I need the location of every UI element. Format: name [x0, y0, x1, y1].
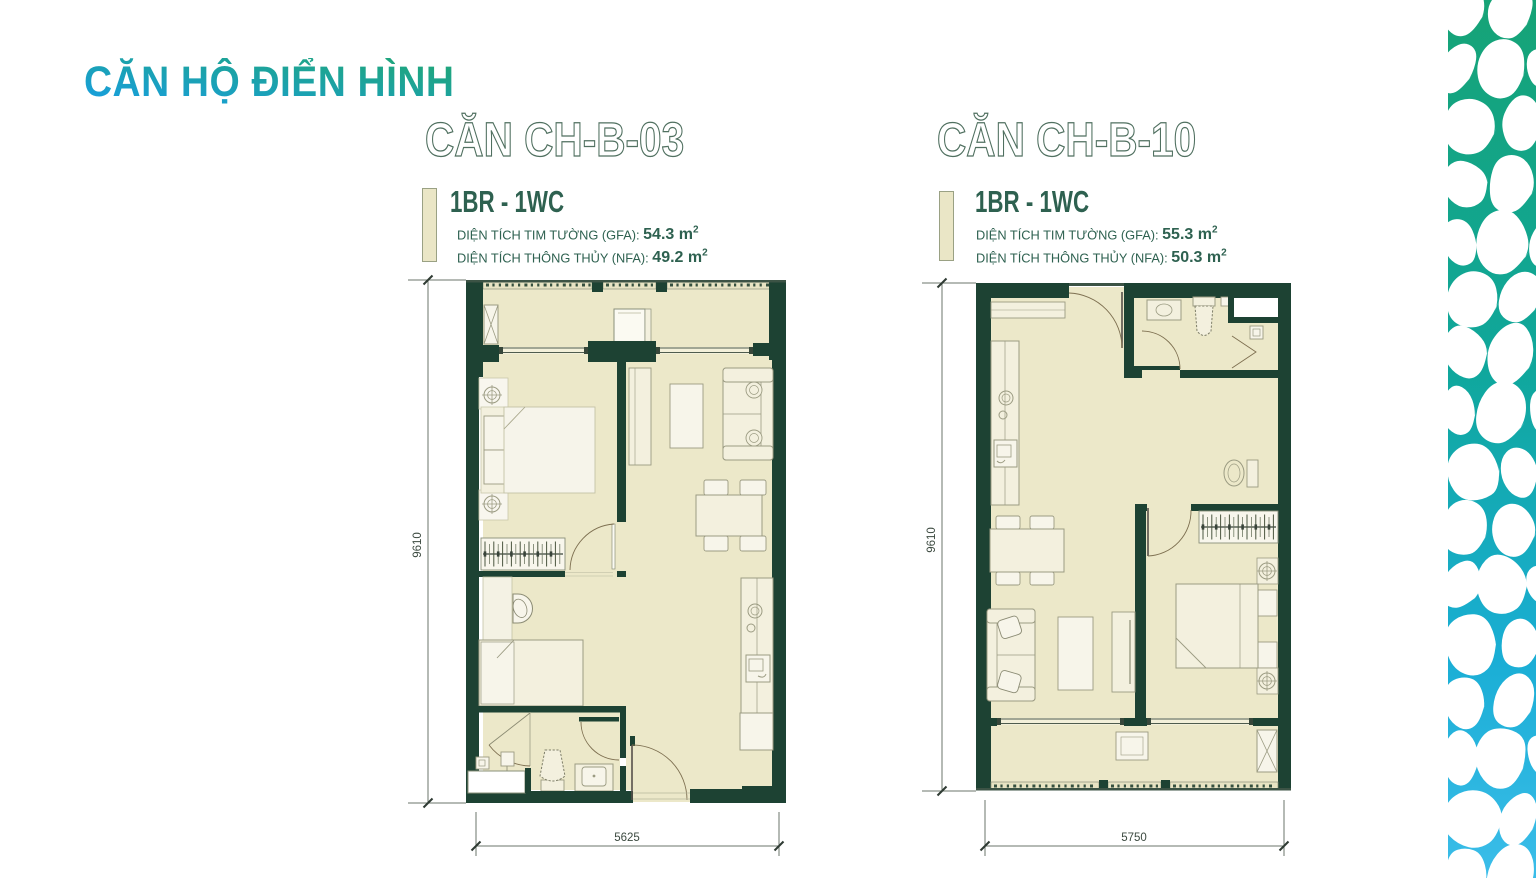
svg-text:5750: 5750 — [1121, 832, 1147, 844]
svg-text:9610: 9610 — [926, 527, 938, 553]
svg-text:9610: 9610 — [412, 532, 424, 558]
svg-text:5625: 5625 — [614, 832, 640, 844]
